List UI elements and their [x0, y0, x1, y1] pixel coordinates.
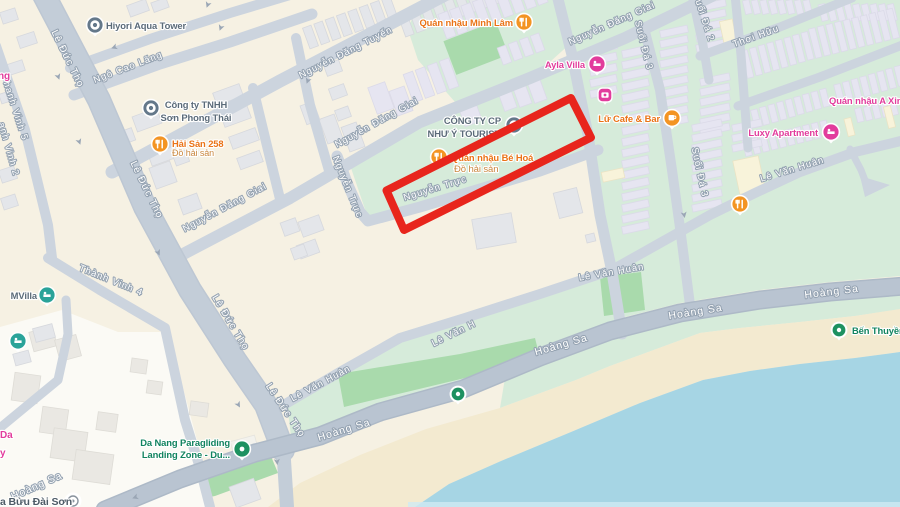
svg-text:Luxy Apartment: Luxy Apartment	[748, 127, 818, 138]
svg-text:CÔNG TY CP: CÔNG TY CP	[444, 115, 501, 126]
svg-text:MVilla: MVilla	[11, 290, 38, 301]
svg-text:Landing Zone - Du...: Landing Zone - Du...	[142, 449, 230, 460]
svg-text:Quán nhậu Minh Lâm: Quán nhậu Minh Lâm	[419, 17, 513, 28]
svg-text:Lữ Cafe & Bar: Lữ Cafe & Bar	[598, 113, 660, 124]
svg-text:Sơn Phong Thái: Sơn Phong Thái	[161, 112, 232, 123]
svg-text:Quán nhậu A Xin: Quán nhậu A Xin	[829, 95, 900, 106]
svg-text:ng: ng	[0, 71, 10, 82]
svg-text:Da: Da	[0, 430, 13, 441]
svg-text:Da Nang Paragliding: Da Nang Paragliding	[140, 437, 230, 448]
svg-text:Bến Thuyền: Bến Thuyền	[852, 325, 900, 336]
svg-text:Đồ hải sản: Đồ hải sản	[454, 164, 498, 175]
svg-text:Hiyori Aqua Tower: Hiyori Aqua Tower	[106, 20, 187, 31]
svg-text:Đồ hải sản: Đồ hải sản	[172, 148, 214, 158]
svg-text:Công ty TNHH: Công ty TNHH	[165, 99, 228, 110]
svg-text:a Bửu Đài Sơn: a Bửu Đài Sơn	[0, 496, 72, 507]
svg-text:Ayla Villa: Ayla Villa	[545, 59, 586, 70]
svg-text:y: y	[0, 448, 6, 459]
